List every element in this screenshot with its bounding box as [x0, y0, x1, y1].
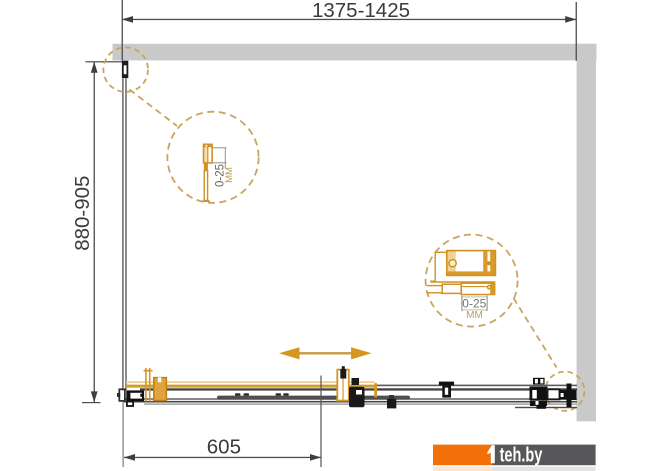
svg-text:ММ: ММ: [466, 310, 483, 321]
svg-text:880-905: 880-905: [71, 176, 94, 251]
svg-text:ММ: ММ: [224, 167, 235, 183]
svg-text:1375-1425: 1375-1425: [312, 0, 410, 22]
svg-text:605: 605: [207, 435, 241, 458]
svg-text:0-25: 0-25: [462, 296, 486, 310]
svg-text:teh.by: teh.by: [500, 443, 543, 466]
